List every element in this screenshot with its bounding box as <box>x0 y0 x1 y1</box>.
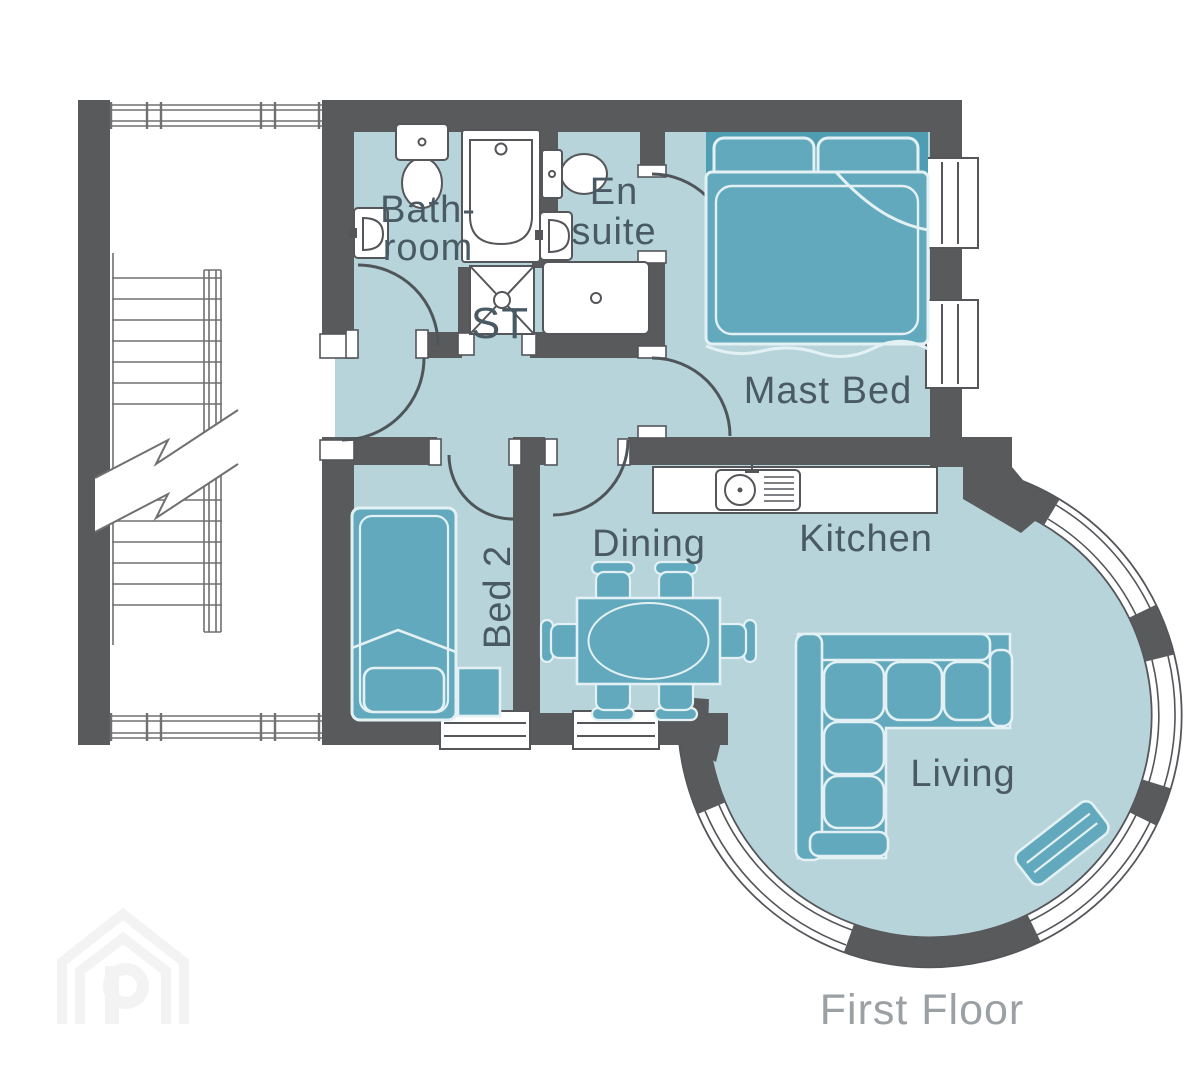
label-bathroom-line2: room <box>383 227 474 269</box>
sofa-cushion <box>824 662 884 720</box>
sofa-back <box>796 634 822 860</box>
master-bed-duvet <box>706 172 928 344</box>
sofa-cushion <box>944 662 992 720</box>
sofa-armrest <box>810 832 888 856</box>
window-master-2 <box>926 300 978 388</box>
sofa-armrest <box>990 650 1012 726</box>
label-ensuite-line2: suite <box>571 211 656 253</box>
ensuite-basin-icon <box>540 212 572 260</box>
sofa-cushion <box>824 776 884 828</box>
sofa-back <box>802 634 990 660</box>
bedside-unit-icon <box>458 668 500 716</box>
label-storage: ST <box>471 299 529 348</box>
staircase <box>95 102 322 741</box>
master-bed <box>706 132 928 357</box>
pillow-icon <box>364 668 444 712</box>
watermark-house-inner <box>80 938 166 1024</box>
dining-table-icon <box>577 598 720 684</box>
sofa-cushion <box>824 722 884 774</box>
wall-bottom-b <box>530 713 573 745</box>
wall-left-lower <box>322 440 354 745</box>
wall-stairwell-left <box>78 100 110 745</box>
wall-kitchen-top <box>628 437 962 465</box>
label-living: Living <box>910 753 1015 795</box>
label-dining: Dining <box>592 523 706 565</box>
sofa-cushion <box>886 662 942 720</box>
label-kitchen: Kitchen <box>799 518 933 560</box>
label-master-bedroom: Mast Bed <box>744 370 913 412</box>
watermark-logo <box>62 914 184 1024</box>
window-master-1 <box>926 158 978 248</box>
label-ensuite-line1: En <box>590 171 638 213</box>
stair-railing-bottom <box>110 713 322 741</box>
floorplan-page: Bath- room En suite ST Mast Bed Bed 2 Di… <box>0 0 1201 1080</box>
wall-right-c <box>930 387 962 437</box>
label-bedroom-2: Bed 2 <box>477 545 519 649</box>
bay-wall-segment <box>1143 784 1157 819</box>
stair-railing-top <box>110 102 322 129</box>
floor-plan: Bath- room En suite ST Mast Bed Bed 2 Di… <box>0 0 1201 1080</box>
floor-title: First Floor <box>820 986 1025 1034</box>
kitchen-fixtures <box>653 464 937 513</box>
kitchen-sink-icon <box>716 470 800 510</box>
watermark-letter-bowl <box>109 969 143 1003</box>
label-bathroom-line1: Bath- <box>380 189 476 231</box>
wall-right-b <box>930 247 962 302</box>
bay-wall-segment <box>1143 611 1160 658</box>
